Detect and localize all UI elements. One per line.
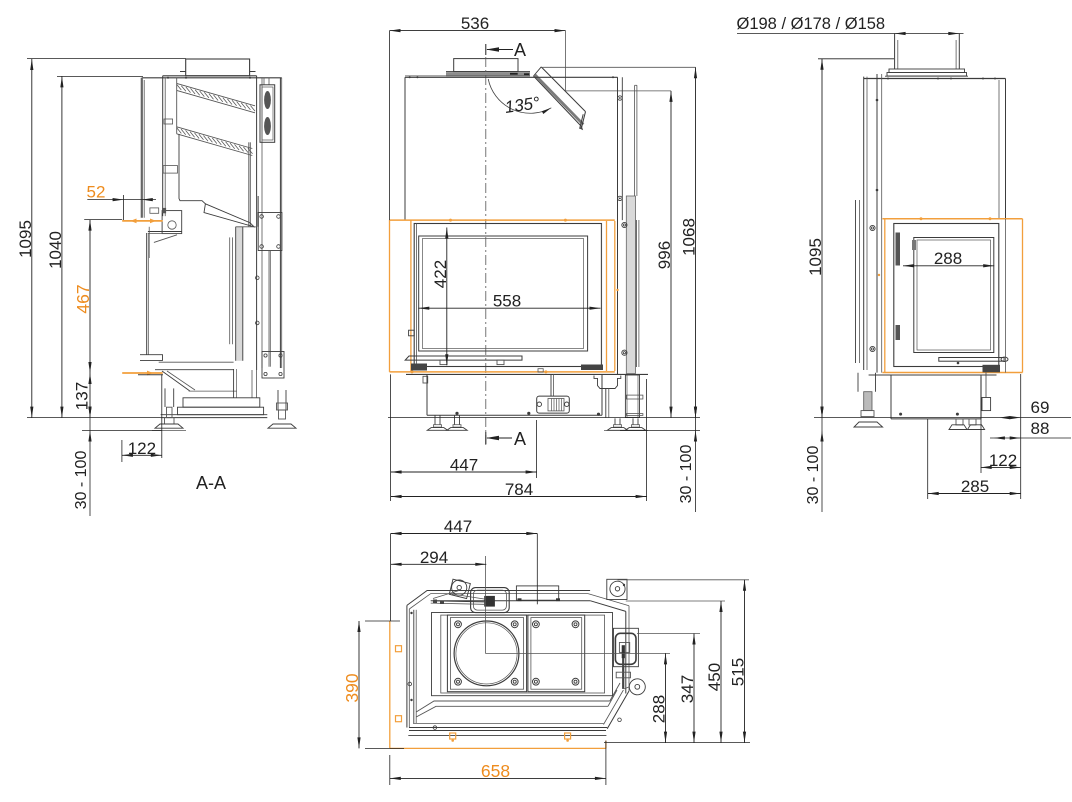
svg-text:288: 288 bbox=[650, 695, 669, 723]
svg-text:30 - 100: 30 - 100 bbox=[73, 451, 90, 510]
svg-text:A: A bbox=[514, 40, 526, 60]
svg-text:447: 447 bbox=[450, 456, 478, 475]
svg-text:A-A: A-A bbox=[196, 473, 226, 493]
svg-text:658: 658 bbox=[481, 761, 510, 781]
svg-text:996: 996 bbox=[655, 241, 674, 269]
svg-text:122: 122 bbox=[989, 451, 1017, 470]
svg-text:422: 422 bbox=[431, 260, 450, 288]
svg-text:558: 558 bbox=[493, 292, 521, 311]
svg-text:467: 467 bbox=[73, 284, 93, 313]
svg-text:69: 69 bbox=[1031, 398, 1050, 417]
svg-text:52: 52 bbox=[87, 183, 106, 202]
svg-text:1040: 1040 bbox=[46, 231, 65, 269]
svg-text:447: 447 bbox=[444, 517, 472, 536]
svg-text:390: 390 bbox=[342, 673, 362, 702]
svg-text:Ø198 / Ø178 / Ø158: Ø198 / Ø178 / Ø158 bbox=[737, 15, 886, 33]
svg-text:30 - 100: 30 - 100 bbox=[678, 445, 695, 504]
svg-text:515: 515 bbox=[729, 658, 748, 686]
svg-text:347: 347 bbox=[678, 675, 697, 703]
svg-text:1068: 1068 bbox=[680, 218, 699, 256]
svg-text:288: 288 bbox=[934, 249, 962, 268]
svg-text:A: A bbox=[514, 429, 526, 449]
svg-text:88: 88 bbox=[1031, 419, 1050, 438]
svg-text:536: 536 bbox=[461, 14, 489, 33]
svg-text:30 - 100: 30 - 100 bbox=[805, 446, 822, 505]
svg-text:122: 122 bbox=[128, 439, 156, 458]
svg-text:1095: 1095 bbox=[16, 220, 35, 258]
svg-text:450: 450 bbox=[705, 663, 724, 691]
svg-text:294: 294 bbox=[420, 548, 448, 567]
svg-text:285: 285 bbox=[961, 477, 989, 496]
svg-text:784: 784 bbox=[505, 480, 533, 499]
svg-text:137: 137 bbox=[73, 382, 92, 410]
svg-text:1095: 1095 bbox=[806, 238, 825, 276]
